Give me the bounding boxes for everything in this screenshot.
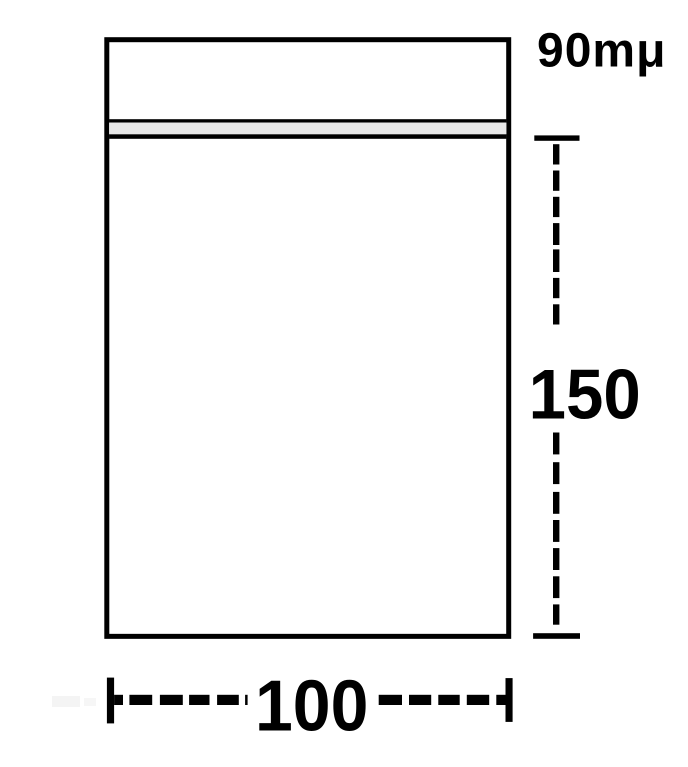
svg-text:90mμ: 90mμ <box>537 25 666 78</box>
svg-text:100: 100 <box>255 664 368 746</box>
svg-text:150: 150 <box>529 355 641 434</box>
